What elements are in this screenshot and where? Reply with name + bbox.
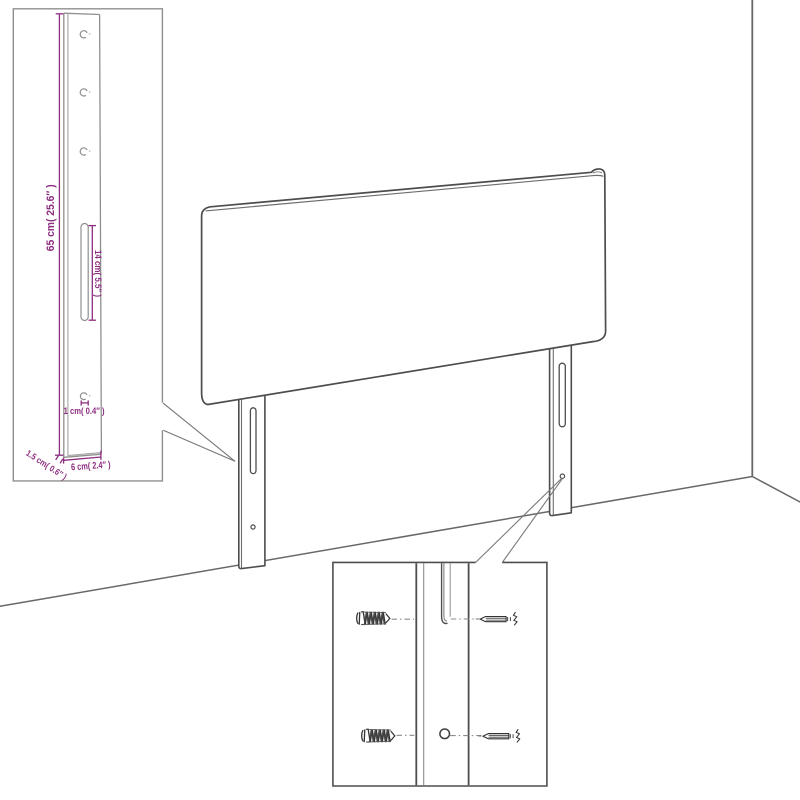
svg-text:1 cm( 0.4″ ): 1 cm( 0.4″ ) [64, 406, 105, 417]
svg-text:14 cm( 5.5″ ): 14 cm( 5.5″ ) [93, 250, 103, 297]
svg-text:65 cm( 25.6″ ): 65 cm( 25.6″ ) [45, 184, 57, 251]
